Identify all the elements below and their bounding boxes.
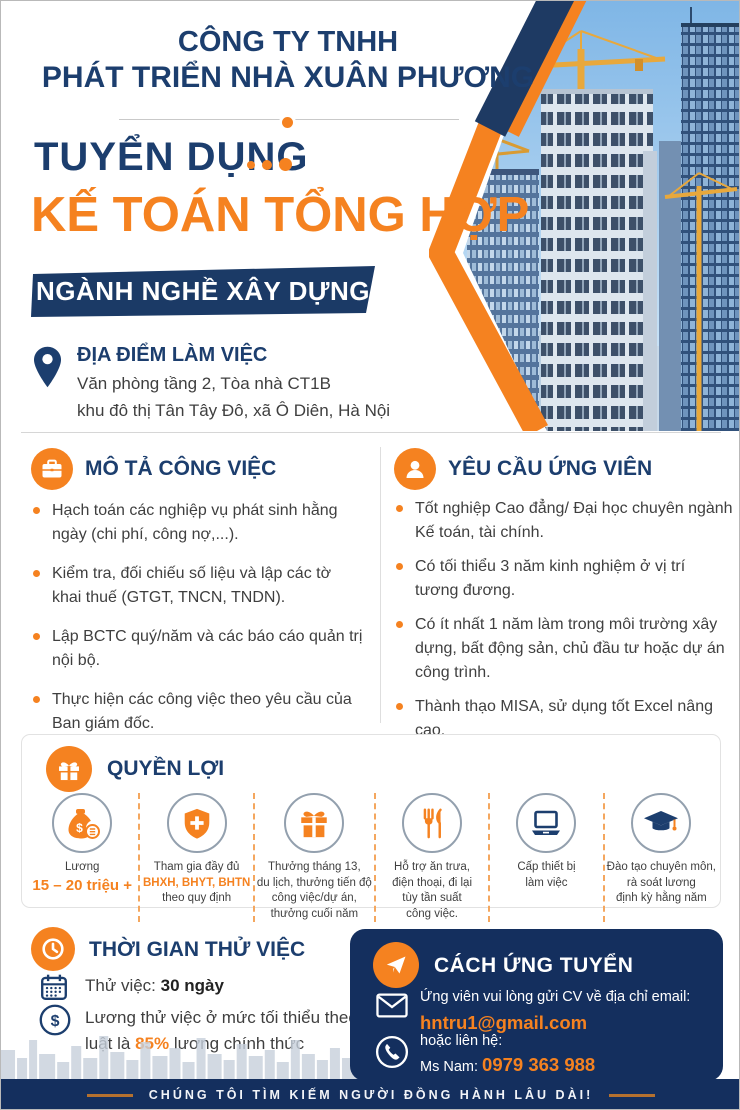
bullet-dot-icon — [33, 696, 40, 703]
graduation-cap-icon — [631, 793, 691, 853]
benefit-label-line: Đào tạo chuyên môn, — [607, 860, 716, 876]
benefit-item: Đào tạo chuyên môn,rà soát lươngđịnh kỳ … — [603, 793, 718, 922]
map-pin-icon — [34, 346, 61, 388]
requirements-title: YÊU CẦU ỨNG VIÊN — [448, 457, 652, 481]
section-divider — [21, 432, 721, 433]
shield-plus-icon — [167, 793, 227, 853]
benefit-item: Thưởng tháng 13,du lịch, thưởng tiến độc… — [253, 793, 374, 922]
list-item-text: Thực hiện các công việc theo yêu cầu của… — [52, 691, 352, 732]
apply-title: CÁCH ỨNG TUYỂN — [434, 954, 633, 978]
header-divider — [119, 119, 459, 120]
benefit-item: $Lương15 – 20 triệu + — [26, 793, 138, 922]
list-item: Tốt nghiệp Cao đẳng/ Đại học chuyên ngàn… — [394, 497, 733, 545]
benefit-label-line: Hỗ trợ ăn trưa, — [378, 860, 486, 876]
benefits-card: QUYỀN LỢI $Lương15 – 20 triệu +Tham gia … — [21, 734, 721, 908]
benefits-title: QUYỀN LỢI — [107, 757, 224, 781]
list-item: Có ít nhất 1 năm làm trong môi trường xâ… — [394, 613, 733, 685]
list-item-text: Hạch toán các nghiệp vụ phát sinh hằng n… — [52, 502, 338, 543]
text-segment: Ms Nam: — [420, 1059, 482, 1075]
benefit-item: Cấp thiết bịlàm việc — [488, 793, 602, 922]
gift-box-icon — [284, 793, 344, 853]
footer-dash-right — [609, 1094, 655, 1097]
recruitment-poster: CÔNG TY TNHH PHÁT TRIỂN NHÀ XUÂN PHƯƠNG … — [0, 0, 740, 1110]
bullet-dot-icon — [33, 633, 40, 640]
svg-text:$: $ — [76, 821, 83, 835]
probation-duration: Thử việc: 30 ngày — [85, 976, 224, 996]
apply-email-text: Ứng viên vui lòng gửi CV về địa chỉ emai… — [420, 987, 718, 1037]
benefit-label: Lương15 – 20 triệu + — [28, 860, 136, 896]
calendar-icon — [39, 972, 69, 1002]
column-divider — [380, 447, 381, 723]
benefit-label-line: rà soát lương — [607, 876, 716, 892]
benefit-label-line: công việc. — [378, 907, 486, 923]
company-name: CÔNG TY TNHH PHÁT TRIỂN NHÀ XUÂN PHƯƠNG — [1, 25, 575, 96]
footer-bar: CHÚNG TÔI TÌM KIẾM NGƯỜI ĐỒNG HÀNH LÂU D… — [1, 1079, 740, 1110]
list-item: Lập BCTC quý/năm và các báo cáo quản trị… — [31, 625, 363, 673]
benefit-label-line: 15 – 20 triệu + — [28, 876, 136, 896]
gift-icon — [46, 746, 92, 792]
footer-slogan: CHÚNG TÔI TÌM KIẾM NGƯỜI ĐỒNG HÀNH LÂU D… — [149, 1088, 593, 1102]
benefit-label-line: Lương — [28, 860, 136, 876]
benefit-label: Thưởng tháng 13,du lịch, thưởng tiến độc… — [257, 860, 372, 922]
company-name-line2: PHÁT TRIỂN NHÀ XUÂN PHƯƠNG — [1, 60, 575, 96]
list-item-text: Kiểm tra, đối chiếu số liệu và lập các t… — [52, 565, 331, 606]
location-title: ĐỊA ĐIỂM LÀM VIỆC — [77, 344, 267, 367]
benefit-label-line: Tham gia đầy đủ — [142, 860, 250, 876]
list-item-text: Thành thạo MISA, sử dụng tốt Excel nâng … — [415, 698, 713, 739]
benefit-label-line: điện thoại, đi lại — [378, 876, 486, 892]
list-item-text: Có tối thiểu 3 năm kinh nghiệm ở vị trí … — [415, 558, 685, 599]
utensils-icon — [402, 793, 462, 853]
benefit-label-line: theo quy định — [142, 891, 250, 907]
decorative-dots-icon — [247, 156, 299, 174]
benefit-label-line: du lịch, thưởng tiến độ — [257, 876, 372, 892]
list-item: Kiểm tra, đối chiếu số liệu và lập các t… — [31, 562, 363, 610]
text-segment: 30 ngày — [161, 976, 224, 995]
company-name-line1: CÔNG TY TNHH — [1, 25, 575, 60]
bullet-dot-icon — [396, 703, 403, 710]
paper-plane-icon — [373, 942, 419, 988]
text-segment: Thử việc: — [85, 976, 161, 995]
bullet-dot-icon — [396, 621, 403, 628]
phone-icon — [375, 1035, 409, 1069]
apply-card: CÁCH ỨNG TUYỂN Ứng viên vui lòng gửi CV … — [350, 929, 723, 1081]
money-bag-icon: $ — [52, 793, 112, 853]
city-skyline-silhouette — [1, 1028, 357, 1080]
text-segment: hoặc liên hệ: — [420, 1033, 502, 1049]
bullet-dot-icon — [33, 507, 40, 514]
footer-dash-left — [87, 1094, 133, 1097]
location-line2: khu đô thị Tân Tây Đô, xã Ô Diên, Hà Nội — [77, 401, 390, 421]
bullet-dot-icon — [396, 505, 403, 512]
benefit-label: Hỗ trợ ăn trưa,điện thoại, đi lạitùy tần… — [378, 860, 486, 922]
benefit-label-line: định kỳ hằng năm — [607, 891, 716, 907]
benefit-label-line: làm việc — [492, 876, 600, 892]
job-description-title: MÔ TẢ CÔNG VIỆC — [85, 457, 276, 481]
laptop-icon — [516, 793, 576, 853]
list-item: Hạch toán các nghiệp vụ phát sinh hằng n… — [31, 499, 363, 547]
list-item: Có tối thiểu 3 năm kinh nghiệm ở vị trí … — [394, 555, 733, 603]
clock-icon — [31, 927, 75, 971]
location-line1: Văn phòng tầng 2, Tòa nhà CT1B — [77, 374, 331, 394]
list-item: Thực hiện các công việc theo yêu cầu của… — [31, 688, 363, 736]
bullet-dot-icon — [33, 570, 40, 577]
list-item-text: Có ít nhất 1 năm làm trong môi trường xâ… — [415, 616, 725, 681]
envelope-icon — [375, 992, 409, 1019]
benefit-label-line: tùy tần suất — [378, 891, 486, 907]
probation-title: THỜI GIAN THỬ VIỆC — [89, 938, 305, 962]
industry-banner: NGÀNH NGHỀ XÂY DỰNG — [31, 266, 375, 317]
orange-dot-icon — [279, 114, 296, 131]
text-segment: Ứng viên vui lòng gửi CV về địa chỉ emai… — [420, 989, 690, 1005]
benefit-item: Hỗ trợ ăn trưa,điện thoại, đi lạitùy tần… — [374, 793, 488, 922]
industry-banner-label: NGÀNH NGHỀ XÂY DỰNG — [36, 276, 370, 307]
benefit-label-line: BHXH, BHYT, BHTN — [142, 876, 250, 892]
position-title: KẾ TOÁN TỔNG HỢP — [31, 187, 529, 243]
benefit-item: Tham gia đầy đủBHXH, BHYT, BHTNtheo quy … — [138, 793, 252, 922]
benefit-label: Tham gia đầy đủBHXH, BHYT, BHTNtheo quy … — [142, 860, 250, 907]
bullet-dot-icon — [396, 563, 403, 570]
apply-phone-text: hoặc liên hệ:Ms Nam: 0979 363 988 — [420, 1031, 718, 1079]
benefit-label-line: Cấp thiết bị — [492, 860, 600, 876]
list-item-text: Tốt nghiệp Cao đẳng/ Đại học chuyên ngàn… — [415, 500, 733, 541]
text-segment: 0979 363 988 — [482, 1054, 595, 1075]
text-segment: hntru1@gmail.com — [420, 1012, 587, 1033]
person-icon — [394, 448, 436, 490]
briefcase-icon — [31, 448, 73, 490]
benefit-label: Cấp thiết bịlàm việc — [492, 860, 600, 891]
benefit-label-line: thưởng cuối năm — [257, 907, 372, 923]
benefit-label-line: Thưởng tháng 13, — [257, 860, 372, 876]
list-item-text: Lập BCTC quý/năm và các báo cáo quản trị… — [52, 628, 362, 669]
benefit-label-line: công việc/dự án, — [257, 891, 372, 907]
benefit-label: Đào tạo chuyên môn,rà soát lươngđịnh kỳ … — [607, 860, 716, 907]
benefits-row: $Lương15 – 20 triệu +Tham gia đầy đủBHXH… — [26, 793, 718, 922]
job-description-list: Hạch toán các nghiệp vụ phát sinh hằng n… — [31, 499, 363, 751]
